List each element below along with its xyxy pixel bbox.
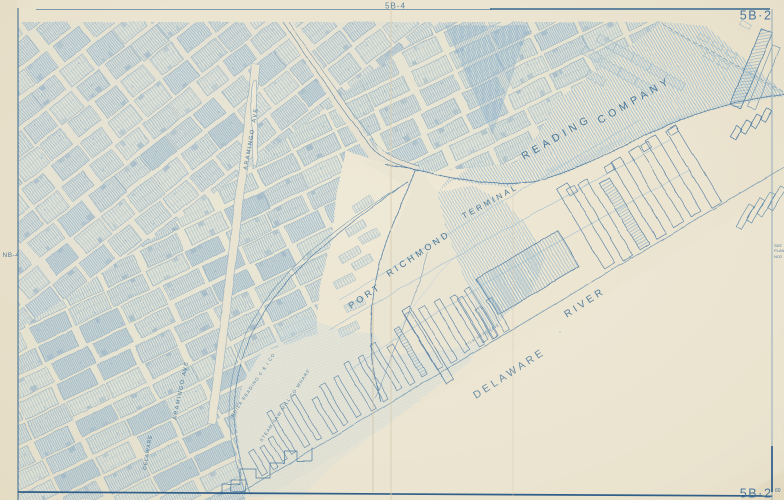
svg-text:5B·2: 5B·2 bbox=[740, 487, 773, 500]
svg-text:60: 60 bbox=[775, 488, 781, 494]
svg-text:5B·2: 5B·2 bbox=[740, 9, 773, 23]
svg-text:5B-4: 5B-4 bbox=[385, 2, 406, 11]
svg-text:NO2: NO2 bbox=[774, 254, 783, 259]
svg-text:NB-4: NB-4 bbox=[3, 252, 20, 259]
svg-text:PLAN: PLAN bbox=[774, 248, 784, 253]
